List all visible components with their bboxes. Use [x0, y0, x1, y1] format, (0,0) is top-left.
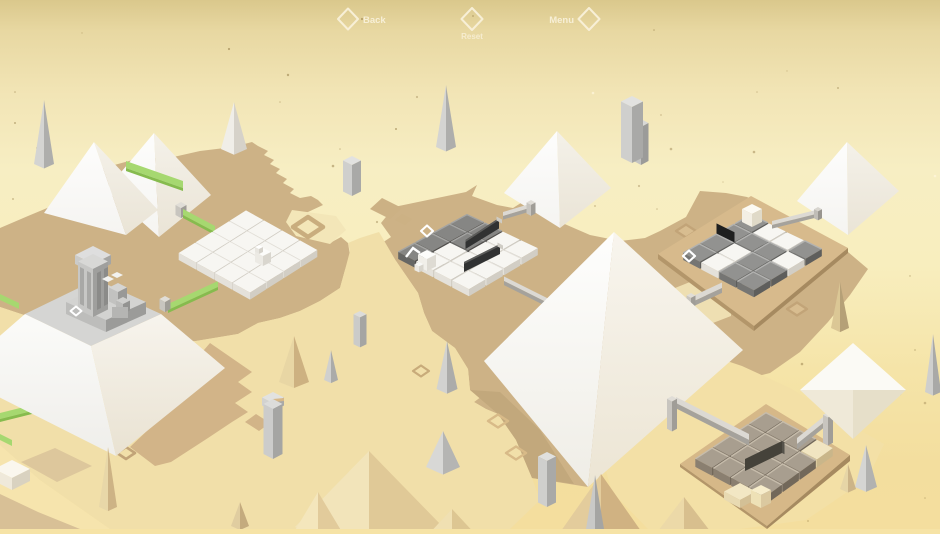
svg-text:Menu: Menu — [549, 15, 574, 26]
svg-text:Reset: Reset — [461, 32, 483, 41]
svg-text:Back: Back — [363, 15, 386, 26]
